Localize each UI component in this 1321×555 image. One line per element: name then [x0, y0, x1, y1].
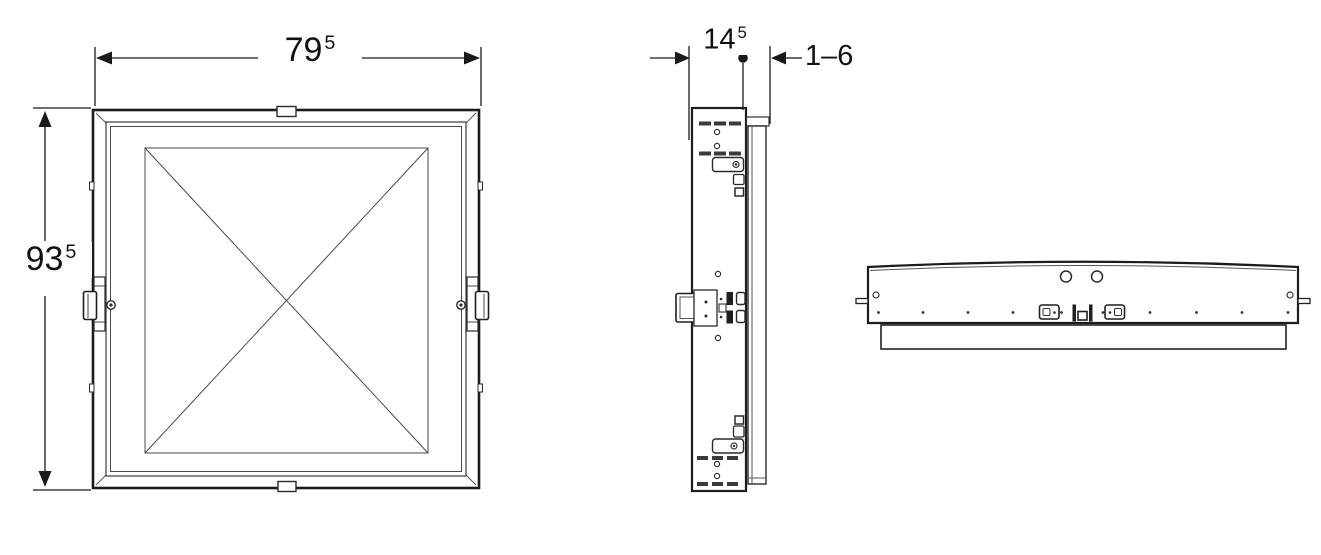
width-arrow-left [96, 52, 112, 65]
depth-decimal: 5 [737, 23, 746, 42]
rear-side-pin-right [1298, 299, 1310, 304]
depth-dimension-label: 145 [692, 24, 758, 55]
drawing-canvas [0, 0, 1321, 555]
depth-value: 14 [703, 23, 735, 55]
rear-side-pin-left [856, 299, 868, 304]
width-value: 79 [285, 31, 323, 69]
front-view [84, 107, 489, 492]
bottom-clip-tab [278, 482, 296, 492]
width-dimension-label: 795 [258, 33, 362, 69]
side-door-panel [748, 126, 766, 484]
height-arrow-bottom [39, 471, 52, 487]
height-value: 93 [26, 240, 64, 278]
width-decimal: 5 [324, 32, 335, 54]
rear-hole-left [1061, 271, 1072, 282]
range-arrow [771, 52, 786, 65]
side-view [676, 108, 769, 491]
rear-bracket-right [1105, 305, 1125, 319]
depth-arrow-left [675, 52, 690, 65]
door-top-bracket [747, 117, 770, 126]
top-clip-tab [277, 107, 296, 117]
height-arrow-top [39, 111, 52, 127]
front-outer-frame [93, 110, 479, 488]
rear-end-hole-right [1287, 292, 1293, 298]
range-dimension-label: 1–6 [803, 41, 855, 71]
rear-end-hole-left [873, 292, 879, 298]
rear-hole-right [1092, 271, 1103, 282]
height-dimension-label: 935 [10, 242, 92, 278]
rear-bracket-left [1040, 305, 1060, 319]
rear-lower-rail [881, 325, 1286, 349]
height-decimal: 5 [65, 241, 76, 263]
width-arrow-right [464, 52, 480, 65]
range-value: 1–6 [805, 40, 853, 72]
rear-view [856, 262, 1310, 349]
technical-drawing-page: 795 935 145 1–6 [0, 0, 1321, 555]
